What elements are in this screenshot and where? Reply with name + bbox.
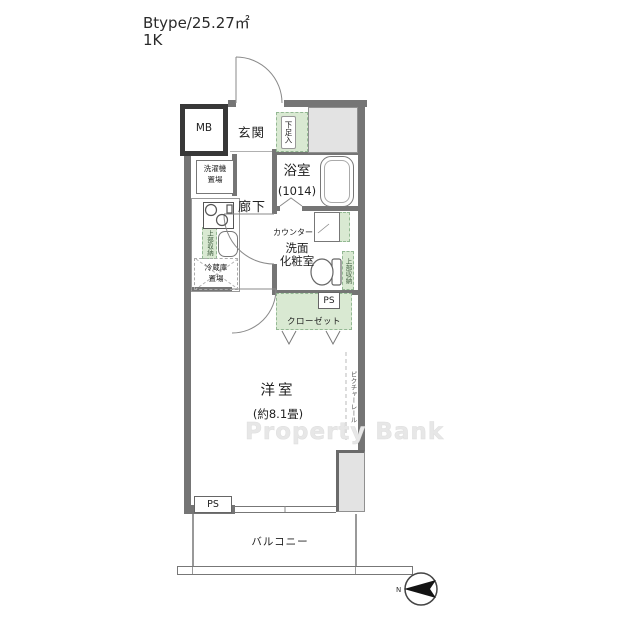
closet-label: クローゼット xyxy=(281,315,347,327)
room-label-western-room: 洋室 xyxy=(248,380,308,398)
washer-label-line2: 置場 xyxy=(196,174,234,184)
room-label-balcony: バルコニー xyxy=(246,534,314,548)
room-label-bathroom: 浴室 xyxy=(274,161,320,177)
stove-burner xyxy=(217,215,228,226)
watermark: Property Bank xyxy=(245,419,444,445)
closet-door-mark xyxy=(282,331,296,344)
bathroom-size-label: (1014) xyxy=(272,184,322,198)
counter-label: カウンター xyxy=(273,227,313,238)
upper-storage-right-label: 上部収納 xyxy=(342,252,354,289)
north-label: N xyxy=(396,586,401,594)
pipe-space-mid-label: PS xyxy=(318,292,340,309)
stove-grill xyxy=(227,205,232,213)
fridge-label-line2: 置場 xyxy=(194,273,238,283)
vanity-label-line2: 化粧室 xyxy=(276,255,318,267)
washroom-door-arc xyxy=(224,214,274,264)
plan-layout-label: 1K xyxy=(143,31,162,49)
compass-icon: N xyxy=(396,573,437,605)
room-label-entrance: 玄関 xyxy=(238,122,265,141)
plan-title: Btype/25.27㎡ xyxy=(143,12,250,33)
closet-door-mark xyxy=(326,331,340,344)
room-label-hallway: 廊下 xyxy=(238,196,266,215)
washer-label-line1: 洗濯機 xyxy=(196,163,234,173)
upper-storage-left-label: 上部収納 xyxy=(202,228,217,258)
room-label-mb: MB xyxy=(180,121,228,135)
room-door-arc xyxy=(232,289,276,333)
bathroom-folding-door xyxy=(280,198,302,206)
room-label-shoe-storage: 下足入 xyxy=(281,117,296,148)
fridge-label-line1: 冷蔵庫 xyxy=(194,262,238,272)
stove-burner xyxy=(206,205,217,216)
pipe-space-bottom-label: PS xyxy=(194,496,232,513)
floorplan-canvas: Btype/25.27㎡ 1K xyxy=(0,0,640,639)
counter-leader-line xyxy=(318,224,329,233)
entrance-door-arc xyxy=(236,57,282,103)
